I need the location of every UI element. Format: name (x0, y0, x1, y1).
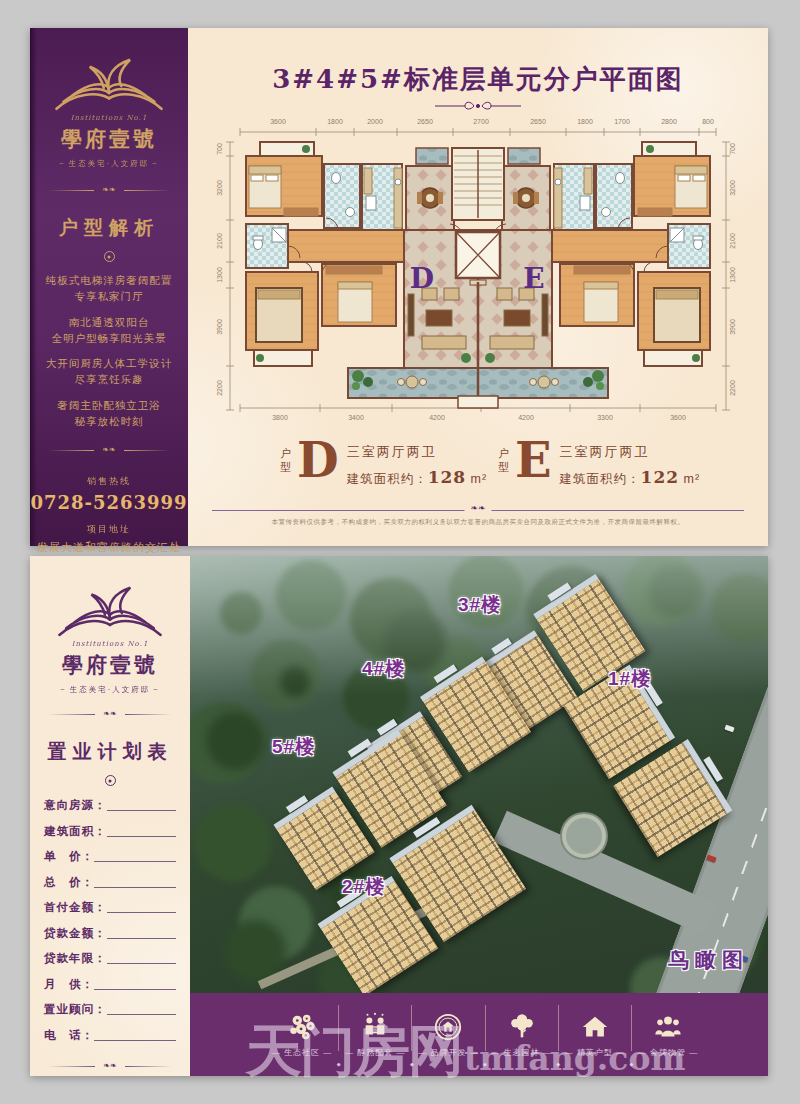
feature-bar: — 生态社区 — — 醇熟配套 — — 品牌开发 — (190, 993, 768, 1076)
floorplan-main: 3#4#5#标准层单元分户平面图 (188, 28, 768, 546)
form-row: 电 话： (44, 1028, 176, 1043)
svg-text:2800: 2800 (661, 118, 677, 125)
form-row: 单 价： (44, 849, 176, 864)
divider-ornament: ❧❧ (48, 185, 170, 195)
svg-text:3300: 3300 (597, 414, 613, 421)
unit-d-letter: D (410, 262, 434, 295)
svg-text:3600: 3600 (270, 118, 286, 125)
form-blank-line (94, 886, 176, 888)
unit-type-label: 户型 (280, 446, 293, 475)
feature-label: — 醇熟配套 — (345, 1047, 405, 1058)
address-label: 项目地址 (30, 523, 188, 536)
bullet-line: 纯板式电梯洋房奢阔配置 (46, 274, 173, 286)
page-title: 3#4#5#标准层单元分户平面图 (188, 62, 768, 97)
bar-separator (485, 1005, 486, 1051)
svg-text:800: 800 (702, 118, 714, 125)
disclaimer-text: 本宣传资料仅供参考，不构成要约，买卖双方的权利义务以双方签署的商品房买卖合同及政… (188, 518, 768, 527)
bullet-line: 奢阔主卧配独立卫浴 (57, 399, 161, 411)
feature-amenities: — 醇熟配套 — (339, 1012, 411, 1058)
bullet-line: 南北通透双阳台 (69, 316, 150, 328)
bottom-sidebar: Institutions No.1 學府壹號 生态美宅·人文府邸 ❧❧ 置业计划… (30, 556, 190, 1076)
form-label: 月 供： (44, 977, 94, 992)
form-row: 贷款年限： (44, 951, 176, 966)
svg-text:3200: 3200 (216, 180, 223, 196)
area-unit: m² (471, 472, 488, 486)
area-unit: m² (684, 472, 701, 486)
bullet-line: 专享私家门厅 (75, 290, 144, 302)
brand-script: Institutions No.1 (30, 640, 190, 648)
svg-text:4200: 4200 (518, 414, 534, 421)
form-blank-line (94, 860, 176, 862)
people-group-icon (653, 1012, 683, 1042)
bar-separator (338, 1005, 339, 1051)
book-phoenix-logo-icon (50, 58, 168, 114)
divider-ornament: ❧❧ (48, 709, 172, 719)
bar-separator (411, 1005, 412, 1051)
house-badge-icon (433, 1012, 463, 1042)
dimension-labels-top: 3600 1800 2000 2650 2700 2650 1800 1700 … (270, 118, 714, 125)
feature-developer: — 品牌开发 — (412, 1012, 484, 1058)
bar-separator (631, 1005, 632, 1051)
building-1-label: 1#楼 (608, 666, 651, 692)
building-3-label: 3#楼 (458, 592, 501, 618)
form-row: 总 价： (44, 875, 176, 890)
form-blank-line (107, 809, 177, 811)
unit-type-label: 户型 (498, 446, 511, 475)
svg-text:2100: 2100 (729, 233, 736, 249)
feature-label: — 精英户型 — (565, 1047, 625, 1058)
feature-unit-design: — 精英户型 — (559, 1012, 631, 1058)
svg-text:1300: 1300 (729, 267, 736, 283)
form-blank-line (94, 1039, 176, 1041)
address-text: 发展大道和官倍路的交汇处 (30, 540, 188, 555)
form-blank-line (107, 937, 177, 939)
form-label: 置业顾问： (44, 1002, 107, 1017)
form-label: 意向房源： (44, 798, 107, 813)
feature-landscape: — 生态园林 — (486, 1012, 558, 1058)
form-label: 首付金额： (44, 900, 107, 915)
svg-text:2650: 2650 (417, 118, 433, 125)
svg-text:3200: 3200 (729, 180, 736, 196)
area-label: 建筑面积约： (560, 472, 641, 486)
feature-label: — 品牌开发 — (418, 1047, 478, 1058)
purchase-plan-form: 意向房源： 建筑面积： 单 价： 总 价： 首付金额： 贷款金额： 贷款年限： … (44, 798, 176, 1043)
unit-rooms: 三室两厅两卫 (560, 443, 701, 461)
divider-ornament: ❧❧ (48, 1061, 172, 1071)
aerial-panel: Institutions No.1 學府壹號 生态美宅·人文府邸 ❧❧ 置业计划… (30, 556, 768, 1076)
form-blank-line (94, 988, 176, 990)
svg-text:4200: 4200 (429, 414, 445, 421)
unit-e-rooms (478, 142, 710, 398)
flower-cluster-icon (287, 1012, 317, 1042)
building-2-label: 2#楼 (342, 874, 385, 900)
dimension-labels-right: 700 3200 2100 1300 3900 2200 (729, 143, 736, 396)
svg-text:3900: 3900 (729, 319, 736, 335)
svg-text:1700: 1700 (614, 118, 630, 125)
feature-label: — 生态社区 — (272, 1047, 332, 1058)
birdseye-caption: 鸟瞰图 (668, 946, 749, 974)
svg-text:3800: 3800 (272, 414, 288, 421)
svg-text:700: 700 (216, 143, 223, 155)
feature-label: — 生态园林 — (491, 1047, 551, 1058)
svg-text:1800: 1800 (327, 118, 343, 125)
form-blank-line (107, 962, 177, 964)
section-title-analysis: 户型解析 (30, 215, 188, 241)
unit-d-info: 户型 D 三室两厅两卫 建筑面积约：128 m² (280, 438, 487, 488)
feature-property-mgmt: — 金牌物管 — (632, 1012, 704, 1058)
building-4-label: 4#楼 (362, 656, 405, 682)
brand-name: 學府壹號 (30, 125, 188, 153)
family-boxes-icon (360, 1012, 390, 1042)
area-value: 128 (428, 467, 467, 487)
svg-text:3900: 3900 (216, 319, 223, 335)
brand-script: Institutions No.1 (30, 114, 188, 122)
unit-e-info: 户型 E 三室两厅两卫 建筑面积约：122 m² (498, 438, 700, 488)
unit-e-letter: E (523, 262, 544, 295)
dot-ornament (104, 251, 115, 262)
form-blank-line (107, 911, 177, 913)
dot-ornament (105, 775, 116, 786)
svg-text:3600: 3600 (670, 414, 686, 421)
dimension-labels-bottom: 3800 3400 4200 4200 3300 3600 (272, 414, 686, 421)
tree-icon (507, 1012, 537, 1042)
section-title-plan-form: 置业计划表 (30, 739, 190, 765)
form-label: 贷款金额： (44, 926, 107, 941)
unit-area: 建筑面积约：122 m² (560, 467, 701, 488)
form-label: 单 价： (44, 849, 94, 864)
bullet-line: 尽享烹饪乐趣 (75, 373, 144, 385)
unit-d-big-letter: D (297, 438, 339, 484)
area-label: 建筑面积约： (347, 472, 428, 486)
dimension-labels-left: 700 3200 2100 1300 3900 2200 (216, 143, 223, 396)
feature-community: — 生态社区 — (266, 1012, 338, 1058)
feature-label: — 金牌物管 — (638, 1047, 698, 1058)
form-row: 首付金额： (44, 900, 176, 915)
form-row: 月 供： (44, 977, 176, 992)
area-value: 122 (641, 467, 680, 487)
floorplan-drawing: 3600 1800 2000 2650 2700 2650 1800 1700 … (198, 112, 758, 428)
svg-text:2650: 2650 (530, 118, 546, 125)
unit-d-rooms (246, 142, 478, 398)
svg-text:2000: 2000 (367, 118, 383, 125)
bullet-line: 秘享放松时刻 (75, 415, 144, 427)
floorplan-panel: Institutions No.1 學府壹號 生态美宅·人文府邸 ❧❧ 户型解析… (30, 28, 768, 546)
form-row: 建筑面积： (44, 824, 176, 839)
form-label: 建筑面积： (44, 824, 107, 839)
bullet-line: 全明户型畅享阳光美景 (52, 332, 167, 344)
svg-text:2200: 2200 (729, 380, 736, 396)
brand-name: 學府壹號 (30, 651, 190, 679)
building-5-label: 5#楼 (272, 734, 315, 760)
unit-rooms: 三室两厅两卫 (347, 443, 488, 461)
brand-logo: Institutions No.1 學府壹號 生态美宅·人文府邸 (30, 58, 188, 169)
bullet-line: 大开间厨房人体工学设计 (46, 357, 173, 369)
form-label: 电 话： (44, 1028, 94, 1043)
title-flourish-icon (433, 100, 523, 112)
round-plaza (562, 814, 606, 858)
svg-text:2700: 2700 (473, 118, 489, 125)
footer-rule-ornament: ❧❧ (464, 503, 491, 513)
hotline-label: 销售热线 (30, 475, 188, 488)
form-row: 意向房源： (44, 798, 176, 813)
aerial-view-photo: 3#楼 4#楼 1#楼 5#楼 2#楼 鸟瞰图 (190, 556, 768, 993)
book-phoenix-logo-icon (54, 586, 166, 640)
form-label: 总 价： (44, 875, 94, 890)
selling-points: 纯板式电梯洋房奢阔配置 专享私家门厅 南北通透双阳台 全明户型畅享阳光美景 大开… (30, 272, 188, 429)
hotline-number: 0728-5263999 (30, 492, 188, 513)
form-blank-line (107, 1013, 177, 1015)
brand-tagline: 生态美宅·人文府邸 (30, 159, 188, 169)
bar-separator (558, 1005, 559, 1051)
form-label: 贷款年限： (44, 951, 107, 966)
top-sidebar: Institutions No.1 學府壹號 生态美宅·人文府邸 ❧❧ 户型解析… (30, 28, 188, 546)
svg-text:700: 700 (729, 143, 736, 155)
svg-text:1300: 1300 (216, 267, 223, 283)
unit-area: 建筑面积约：128 m² (347, 467, 488, 488)
brand-tagline: 生态美宅·人文府邸 (30, 685, 190, 695)
house-icon (580, 1012, 610, 1042)
form-blank-line (107, 835, 177, 837)
svg-text:2100: 2100 (216, 233, 223, 249)
divider-ornament: ❧❧ (48, 445, 170, 455)
unit-e-big-letter: E (515, 438, 552, 484)
brand-logo: Institutions No.1 學府壹號 生态美宅·人文府邸 (30, 586, 190, 695)
svg-text:1800: 1800 (577, 118, 593, 125)
svg-text:2200: 2200 (216, 380, 223, 396)
svg-text:3400: 3400 (348, 414, 364, 421)
form-row: 贷款金额： (44, 926, 176, 941)
form-row: 置业顾问： (44, 1002, 176, 1017)
